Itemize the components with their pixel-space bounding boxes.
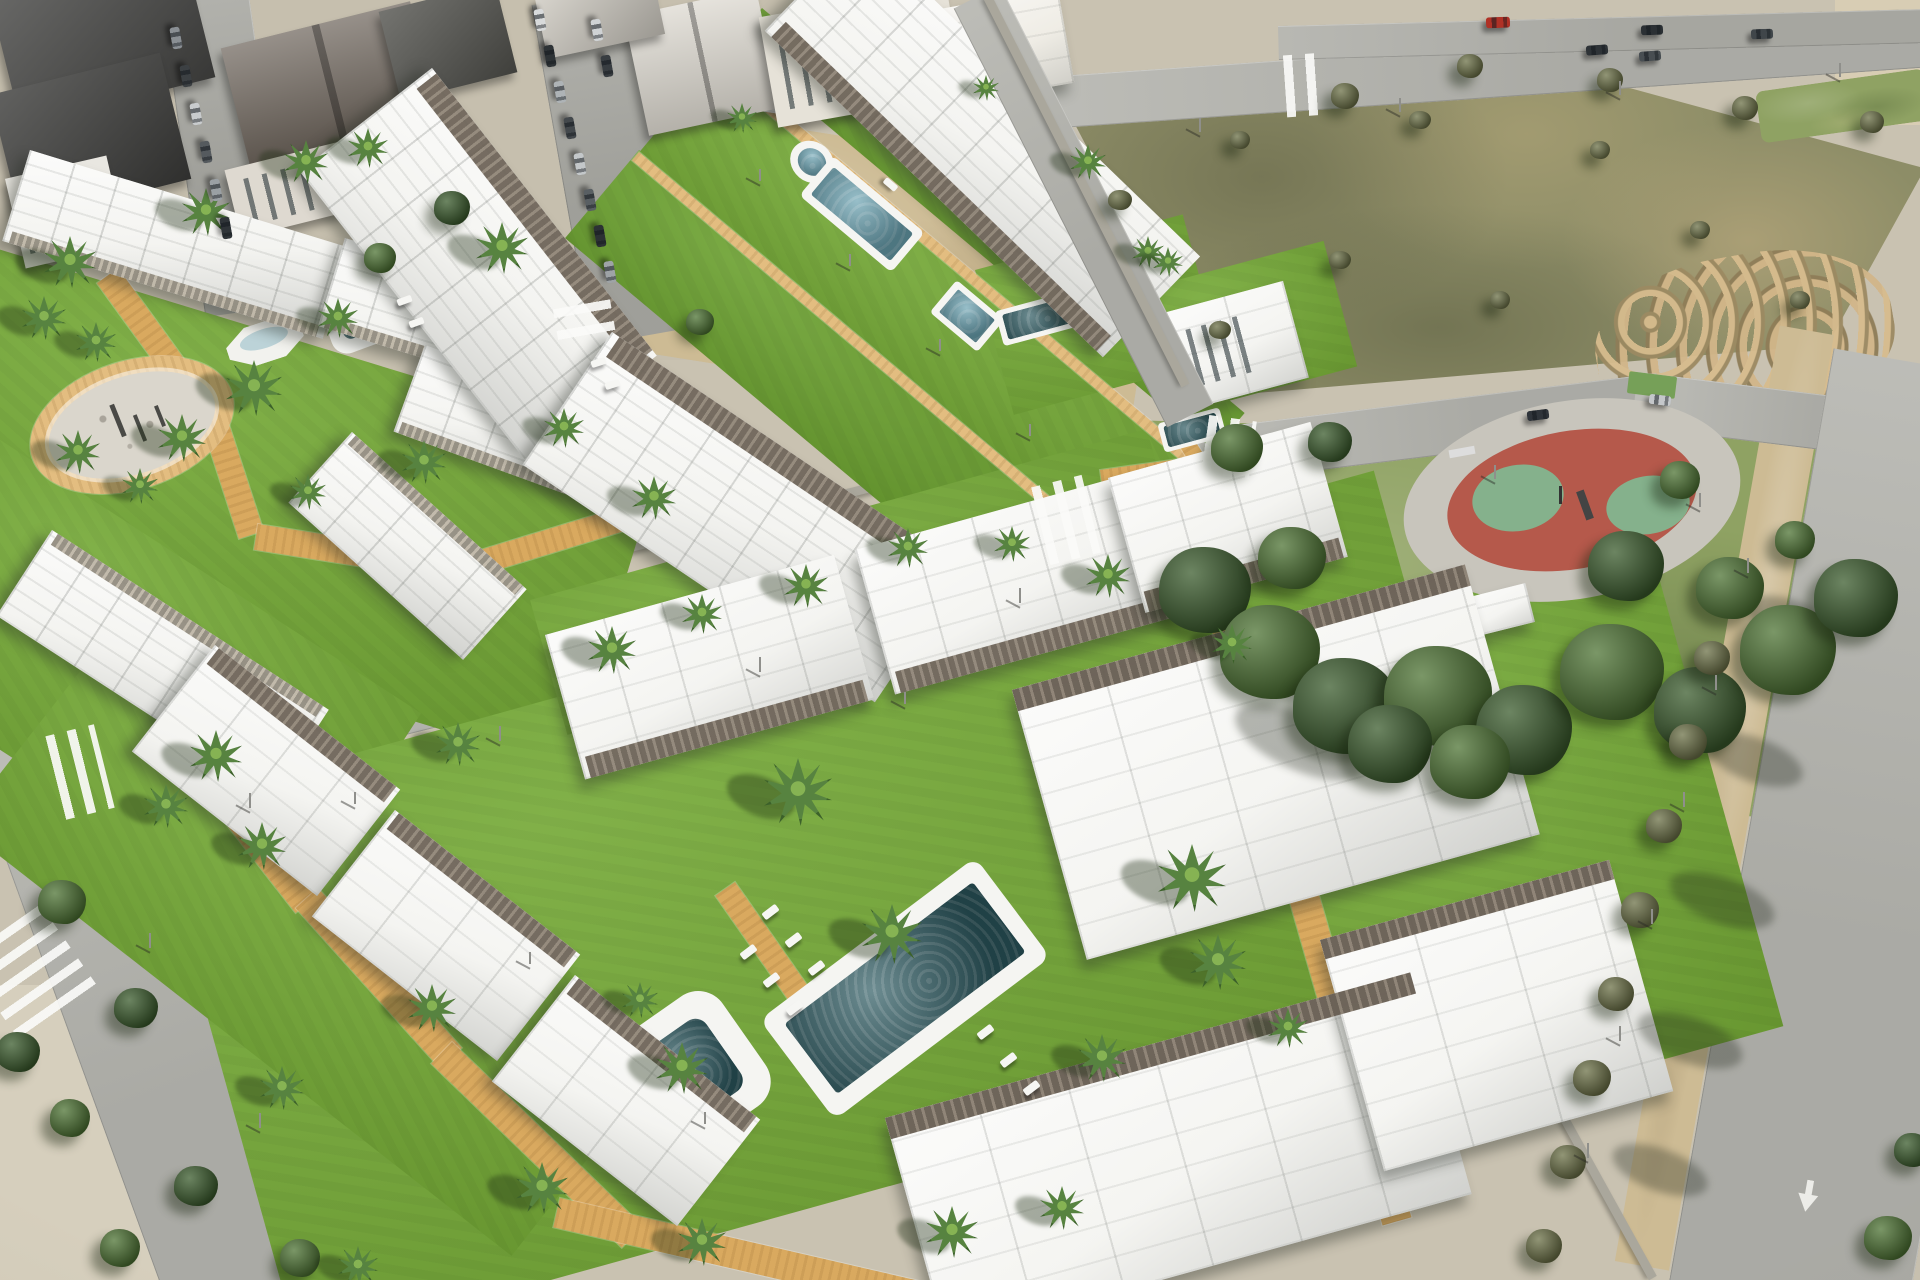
palm-tree [190, 730, 242, 782]
palm-tree [588, 626, 636, 674]
palm-tree [436, 722, 480, 766]
car [1641, 25, 1663, 36]
palm-tree [1040, 1186, 1084, 1230]
palm-tree [318, 298, 358, 338]
aerial-render [0, 0, 1920, 1280]
palm-tree [678, 1218, 726, 1266]
bush [1864, 1216, 1912, 1260]
palm-tree [1086, 554, 1130, 598]
verge-tree [1573, 1060, 1611, 1096]
pine-tree [1775, 521, 1815, 559]
street-tree [1860, 111, 1884, 133]
palm-tree [226, 360, 282, 416]
bush [1894, 1133, 1920, 1167]
garden-lamp [939, 339, 941, 351]
palm-tree [632, 476, 676, 520]
street-light [1651, 909, 1653, 924]
scrub-bush [1108, 190, 1132, 210]
street-light [149, 933, 151, 948]
car [1639, 50, 1662, 62]
garden-lamp [354, 792, 356, 804]
scrub-bush [1329, 251, 1351, 269]
palm-tree [122, 468, 158, 504]
palm-tree [994, 526, 1030, 562]
street-light [249, 793, 251, 808]
palm-tree [764, 758, 832, 826]
palm-tree [348, 128, 388, 168]
palm-tree [727, 103, 757, 133]
palm-tree [784, 564, 828, 608]
palm-tree [926, 1206, 978, 1258]
street-tree [1457, 54, 1483, 78]
pine-tree [1258, 527, 1326, 589]
street-light [259, 1113, 261, 1128]
crosswalk [1283, 53, 1327, 118]
scrub-bush [1790, 291, 1810, 309]
garden-lamp [1029, 424, 1031, 436]
street-tree [100, 1229, 140, 1267]
town-tree [434, 191, 470, 225]
street-tree [0, 1032, 40, 1072]
palm-tree [1212, 624, 1252, 664]
town-tree [686, 309, 714, 335]
palm-tree [516, 1162, 568, 1214]
pine-tree [1660, 461, 1700, 499]
palm-tree [158, 414, 206, 462]
palm-tree [973, 75, 999, 101]
palm-tree [56, 430, 100, 474]
verge-tree [1694, 641, 1730, 675]
palm-tree [1190, 934, 1246, 990]
street-light [1747, 558, 1749, 573]
red-car [1486, 16, 1510, 28]
pine-tree [1308, 422, 1352, 462]
palm-tree [144, 784, 188, 828]
verge-tree [1526, 1229, 1562, 1263]
verge-tree [1669, 724, 1707, 760]
scrub-bush [1490, 291, 1510, 309]
verge-tree [1598, 977, 1634, 1011]
pine-tree [1588, 531, 1664, 601]
street-tree [1331, 83, 1359, 109]
garden-lamp [529, 952, 531, 964]
palm-tree [476, 222, 528, 274]
palm-tree [682, 594, 722, 634]
pine-tree [1211, 424, 1263, 472]
palm-tree [44, 236, 96, 288]
scrub-bush [1590, 141, 1610, 159]
street-light [1019, 588, 1021, 603]
car [1586, 44, 1609, 56]
street-light [759, 657, 761, 672]
palm-tree [1158, 844, 1226, 912]
palm-tree [888, 528, 928, 568]
street-tree [174, 1166, 218, 1206]
pine-tree [1560, 624, 1664, 720]
verge-tree [1646, 809, 1682, 843]
garden-lamp [904, 692, 906, 704]
palm-tree [402, 440, 446, 484]
street-light [1494, 465, 1496, 479]
street-light [1199, 118, 1201, 132]
palm-tree [284, 140, 328, 184]
palm-tree [408, 984, 456, 1032]
street-tree [38, 880, 86, 924]
street-light [1619, 1026, 1621, 1041]
street-light [1587, 1143, 1589, 1158]
pine-tree [1696, 557, 1764, 619]
palm-tree [1078, 1034, 1126, 1082]
street-tree [1732, 96, 1758, 120]
car [1751, 29, 1773, 40]
street-tree [280, 1239, 320, 1277]
palm-tree [1070, 144, 1106, 180]
palm-tree [338, 1246, 378, 1280]
palm-tree [1153, 247, 1183, 277]
palm-tree [1268, 1008, 1308, 1048]
street-light [1399, 98, 1401, 112]
garden-lamp [704, 1112, 706, 1124]
garden-lamp [759, 169, 761, 181]
street-light [1699, 493, 1701, 507]
street-light [499, 726, 501, 741]
street-light [1619, 81, 1621, 95]
town-tree [364, 243, 396, 273]
palm-tree [862, 904, 922, 964]
playground-equipment [1559, 486, 1562, 504]
scrub-bush [1209, 321, 1231, 339]
pine-tree [1814, 559, 1898, 637]
palm-tree [260, 1066, 304, 1110]
street-light [1683, 792, 1685, 807]
palm-tree [544, 408, 584, 448]
verge-tree [1550, 1145, 1586, 1179]
garden-lamp [849, 254, 851, 266]
palm-tree [656, 1042, 708, 1094]
pine-tree [1430, 725, 1510, 799]
street-light [1715, 675, 1717, 690]
scrub-bush [1690, 221, 1710, 239]
street-light [1839, 63, 1841, 77]
scrub-bush [1409, 111, 1431, 129]
palm-tree [290, 474, 326, 510]
pine-tree [1348, 705, 1432, 783]
street-tree [50, 1099, 90, 1137]
palm-tree [238, 822, 286, 870]
palm-tree [622, 982, 658, 1018]
scrub-bush [1230, 131, 1250, 149]
palm-tree [76, 322, 116, 362]
street-tree [114, 988, 158, 1028]
